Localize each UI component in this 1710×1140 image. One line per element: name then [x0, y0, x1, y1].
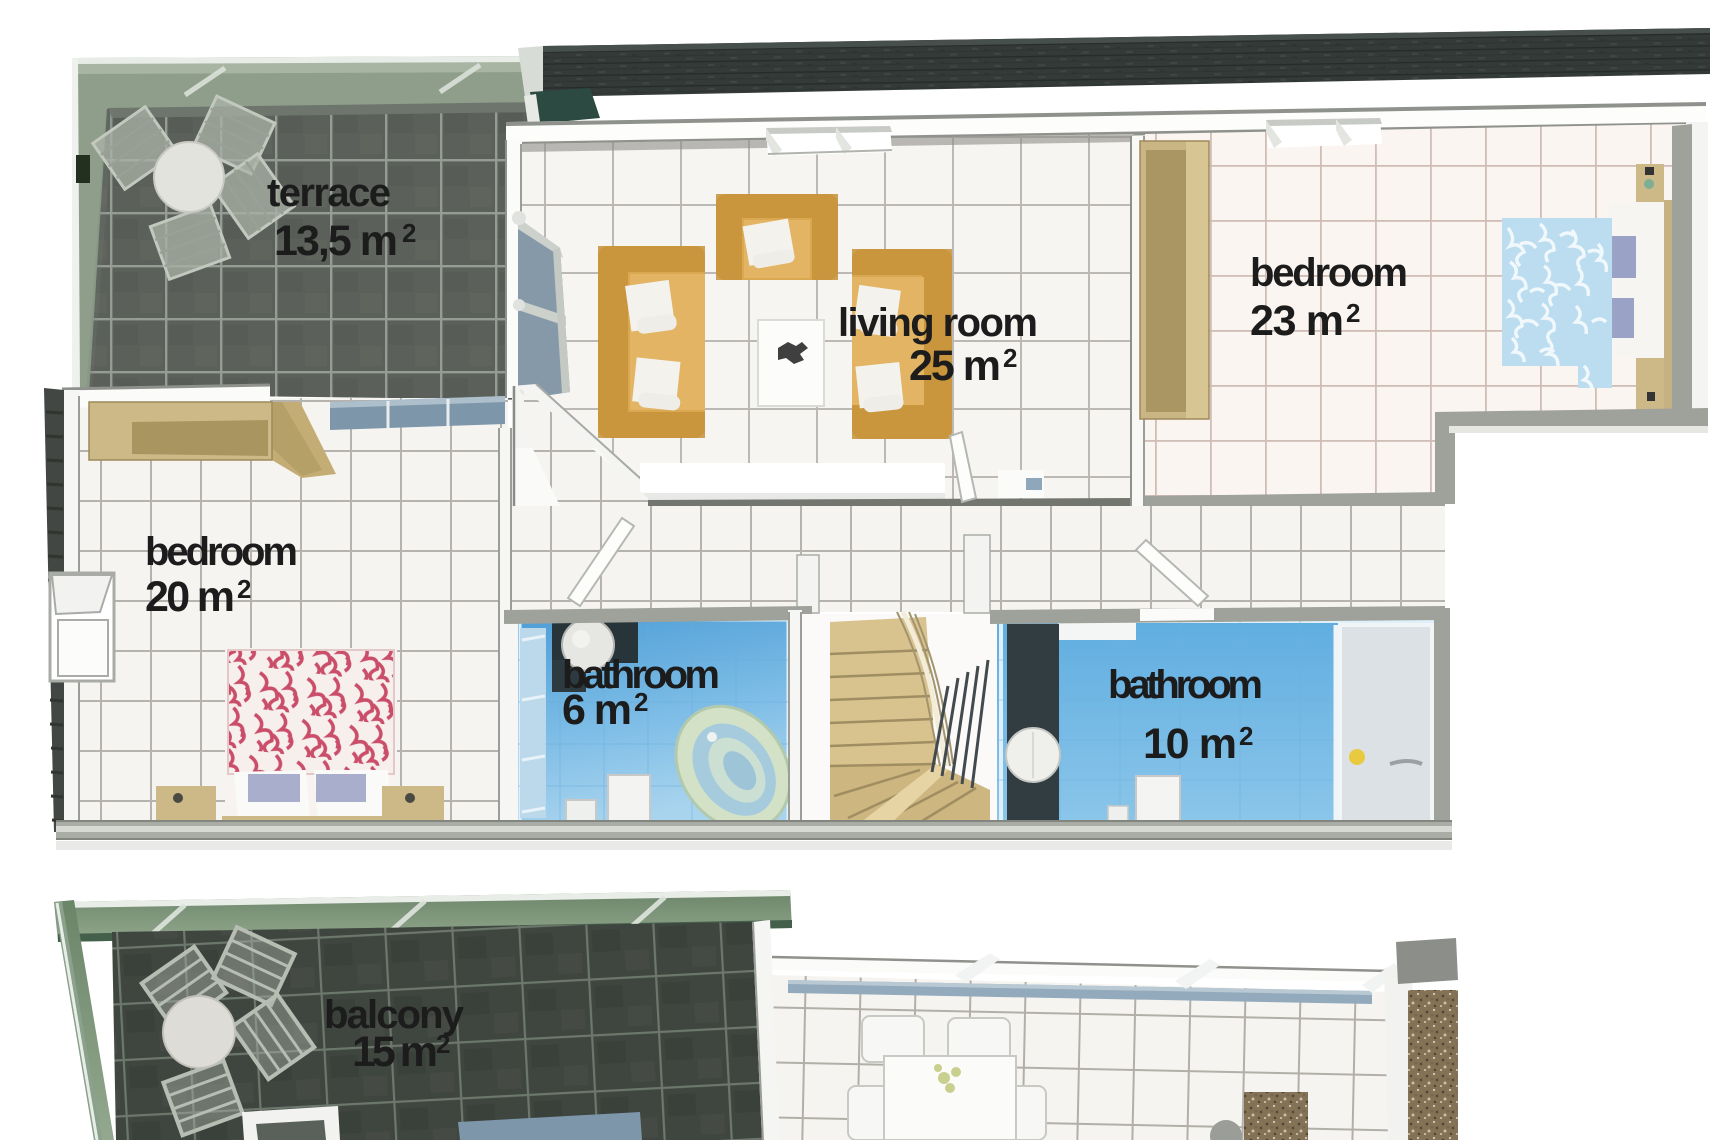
svg-text:2: 2: [634, 687, 648, 717]
svg-text:2: 2: [1346, 298, 1360, 328]
svg-text:bedroom: bedroom: [145, 530, 298, 574]
svg-text:20 m: 20 m: [145, 573, 235, 621]
svg-text:terrace: terrace: [267, 171, 391, 215]
svg-text:23 m: 23 m: [1250, 297, 1344, 345]
svg-text:bedroom: bedroom: [1250, 251, 1408, 295]
svg-text:15 m: 15 m: [352, 1028, 438, 1076]
svg-text:25 m: 25 m: [909, 342, 1001, 390]
svg-text:2: 2: [1003, 343, 1017, 373]
svg-text:bathroom: bathroom: [1108, 663, 1263, 707]
svg-text:10 m: 10 m: [1143, 720, 1237, 768]
svg-text:2: 2: [237, 574, 251, 604]
svg-text:living room: living room: [838, 301, 1038, 345]
svg-text:2: 2: [1239, 721, 1253, 751]
svg-text:6 m: 6 m: [562, 686, 632, 734]
svg-text:2: 2: [402, 218, 416, 248]
svg-text:2: 2: [436, 1029, 450, 1059]
svg-text:13,5 m: 13,5 m: [274, 217, 398, 265]
